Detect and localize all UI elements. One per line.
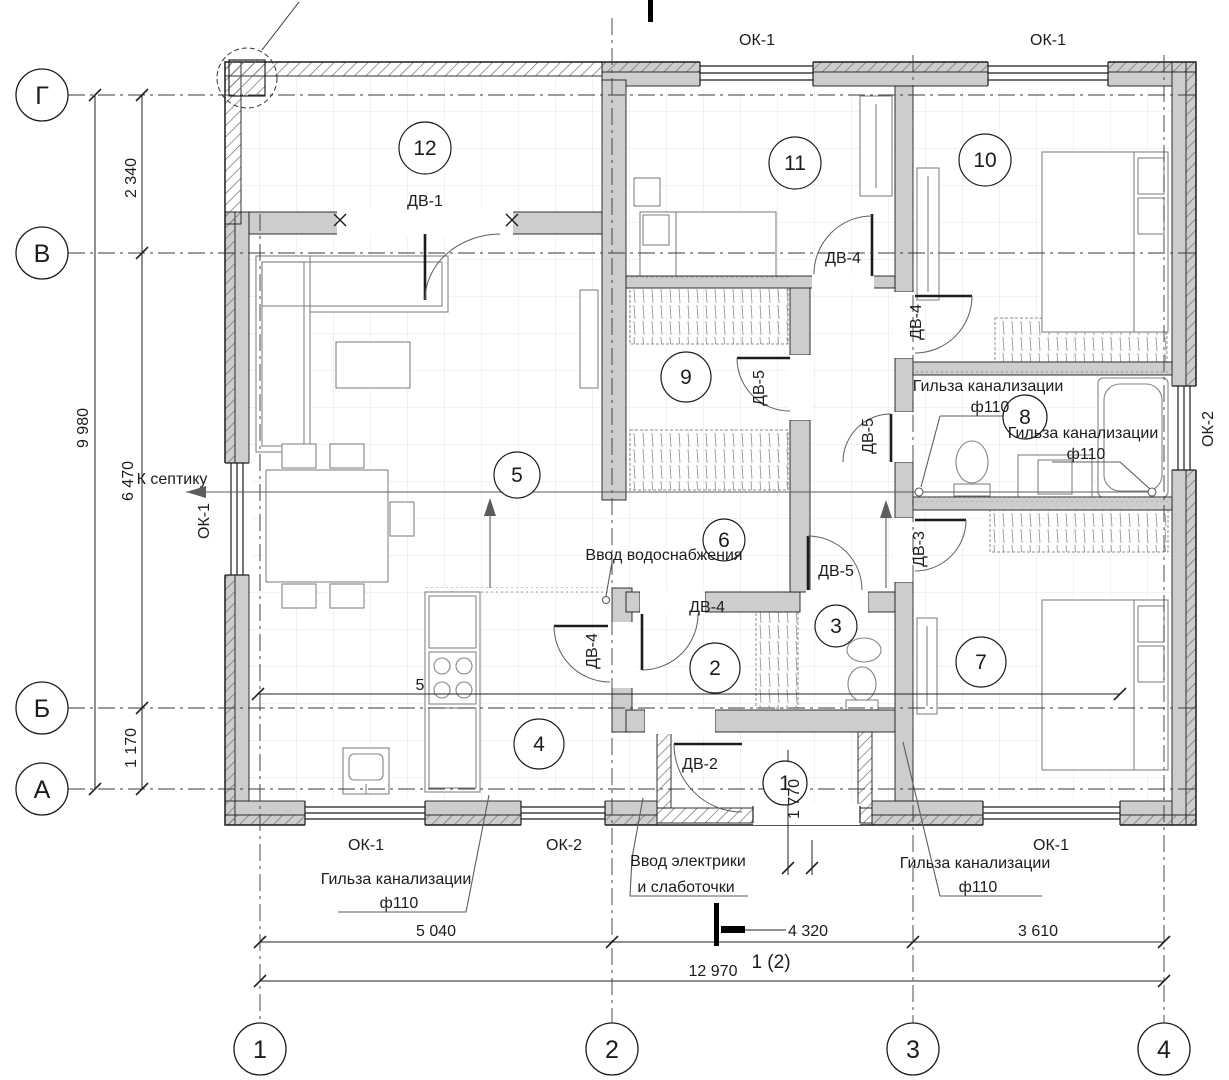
window-ok1-top-room10 [988, 60, 1108, 88]
wall-room9-right [790, 282, 810, 355]
section-mark-bottom [714, 903, 719, 946]
window-ok1-left-living [223, 463, 251, 575]
detail-column [229, 60, 265, 96]
water-entry-node [603, 597, 610, 604]
wall-terrace-top [225, 62, 602, 76]
room-number-2: 2 [709, 657, 721, 680]
floor-plan-drawing: Г В Б А 1 2 3 4 1 2 3 4 5 6 7 8 9 10 11 … [0, 0, 1229, 1080]
door-label-dv4-kitchen: ДВ-4 [584, 633, 601, 669]
room-number-12: 12 [413, 137, 436, 160]
door-label-dv3: ДВ-3 [911, 531, 928, 567]
axis-label-2: 2 [605, 1036, 619, 1064]
annotation-f110-porch: ф110 [959, 879, 998, 896]
coffee-table [336, 342, 410, 388]
sink-room3 [847, 638, 881, 662]
sewer-node-2 [1148, 488, 1156, 496]
dim-bottom-2-3: 4 320 [788, 923, 828, 940]
window-ok1-top-room11 [700, 60, 813, 88]
dim-seg-g-v: 2 340 [123, 158, 140, 198]
door-label-dv2: ДВ-2 [682, 756, 718, 773]
annotation-septic: К септику [137, 471, 208, 488]
axis-label-v: В [34, 240, 51, 268]
partition-kitchen [425, 587, 612, 596]
wardrobe-room7 [990, 508, 1168, 552]
bed-room7 [1042, 600, 1168, 770]
dim-entry-width: 1 770 [786, 779, 803, 819]
window-label-ok2-right: ОК-2 [1200, 411, 1217, 447]
window-ok2-bottom-kitchen [521, 799, 605, 827]
annotation-sleeve-kitchen: Гильза канализации [321, 871, 472, 888]
wardrobe-room9-top [630, 286, 788, 344]
room-number-11: 11 [784, 152, 806, 175]
axis-label-1: 1 [253, 1036, 267, 1064]
dim-total-horizontal: 12 970 [689, 963, 738, 980]
wall-porch-right [858, 732, 872, 808]
section-mark-top [648, 0, 653, 22]
room-number-10: 10 [973, 149, 996, 172]
door-label-dv4-room2: ДВ-4 [689, 599, 725, 616]
door-label-dv5-bath: ДВ-5 [860, 418, 877, 454]
axis-label-g: Г [35, 82, 49, 110]
room-number-9: 9 [680, 366, 692, 389]
tv-cabinet [580, 290, 598, 388]
window-ok1-bottom-room7 [983, 799, 1120, 827]
wall-porch-left [657, 732, 671, 808]
wall-center-vertical [895, 86, 913, 292]
section-flag [721, 926, 745, 933]
annotation-electric-line2: и слаботочки [637, 879, 734, 896]
window-ok2-right-bath [1170, 386, 1198, 470]
door-label-dv5-room9: ДВ-5 [751, 370, 768, 406]
door-label-dv1: ДВ-1 [407, 193, 443, 210]
annotation-f110-bath-1: ф110 [971, 399, 1010, 416]
dim-seg-v-b: 6 470 [120, 461, 137, 501]
annotation-sleeve-bath-2: Гильза канализации [1008, 425, 1159, 442]
window-label-ok1-bottom-left: ОК-1 [348, 837, 384, 854]
room-number-7: 7 [975, 651, 987, 674]
room-number-4: 4 [533, 733, 545, 756]
axis-label-4: 4 [1157, 1036, 1171, 1064]
wall-living-rooms [602, 80, 626, 500]
window-ok1-bottom-kitchen [305, 799, 425, 827]
section-label: 1 (2) [751, 952, 790, 973]
dim-internal: 5 [416, 677, 425, 694]
axis-label-b: Б [34, 695, 50, 723]
annotation-sleeve-bath-1: Гильза канализации [913, 378, 1064, 395]
door-label-dv4-room11: ДВ-4 [825, 250, 861, 267]
window-label-ok2-bottom: ОК-2 [546, 837, 582, 854]
bed-room10 [1042, 152, 1168, 332]
window-label-ok1-top-right: ОК-1 [1030, 32, 1066, 49]
dim-bottom-1-2: 5 040 [416, 923, 456, 940]
window-label-ok1-top-left: ОК-1 [739, 32, 775, 49]
annotation-f110-bath-2: ф110 [1067, 446, 1106, 463]
axis-label-3: 3 [906, 1036, 920, 1064]
wardrobe-room9-bottom [630, 430, 788, 490]
dim-total-vertical: 9 980 [75, 408, 92, 448]
annotation-water-entry: Ввод водоснабжения [585, 547, 742, 564]
detail-leader [262, 2, 299, 50]
kitchen-sink [343, 748, 389, 794]
kitchen-counter [425, 592, 480, 792]
room-number-3: 3 [830, 615, 842, 638]
sewer-node-1 [915, 488, 923, 496]
axis-label-a: А [34, 776, 51, 804]
dim-seg-b-a: 1 170 [123, 728, 140, 768]
door-label-dv5-room3: ДВ-5 [818, 563, 854, 580]
floor-plan-canvas: Г В Б А 1 2 3 4 1 2 3 4 5 6 7 8 9 10 11 … [0, 0, 1229, 1080]
toilet-room8 [954, 441, 990, 496]
annotation-f110-kitchen: ф110 [380, 895, 419, 912]
window-label-ok1-left: ОК-1 [196, 503, 213, 539]
porch-entrance-opening [753, 804, 860, 825]
room-number-5: 5 [511, 464, 523, 487]
dim-bottom-3-4: 3 610 [1018, 923, 1058, 940]
annotation-electric-line1: Ввод электрики [630, 853, 746, 870]
annotation-sleeve-porch: Гильза канализации [900, 855, 1051, 872]
window-label-ok1-bottom-right: ОК-1 [1033, 837, 1069, 854]
door-label-dv4-room10: ДВ-4 [908, 304, 925, 340]
toilet-room3 [846, 667, 878, 710]
